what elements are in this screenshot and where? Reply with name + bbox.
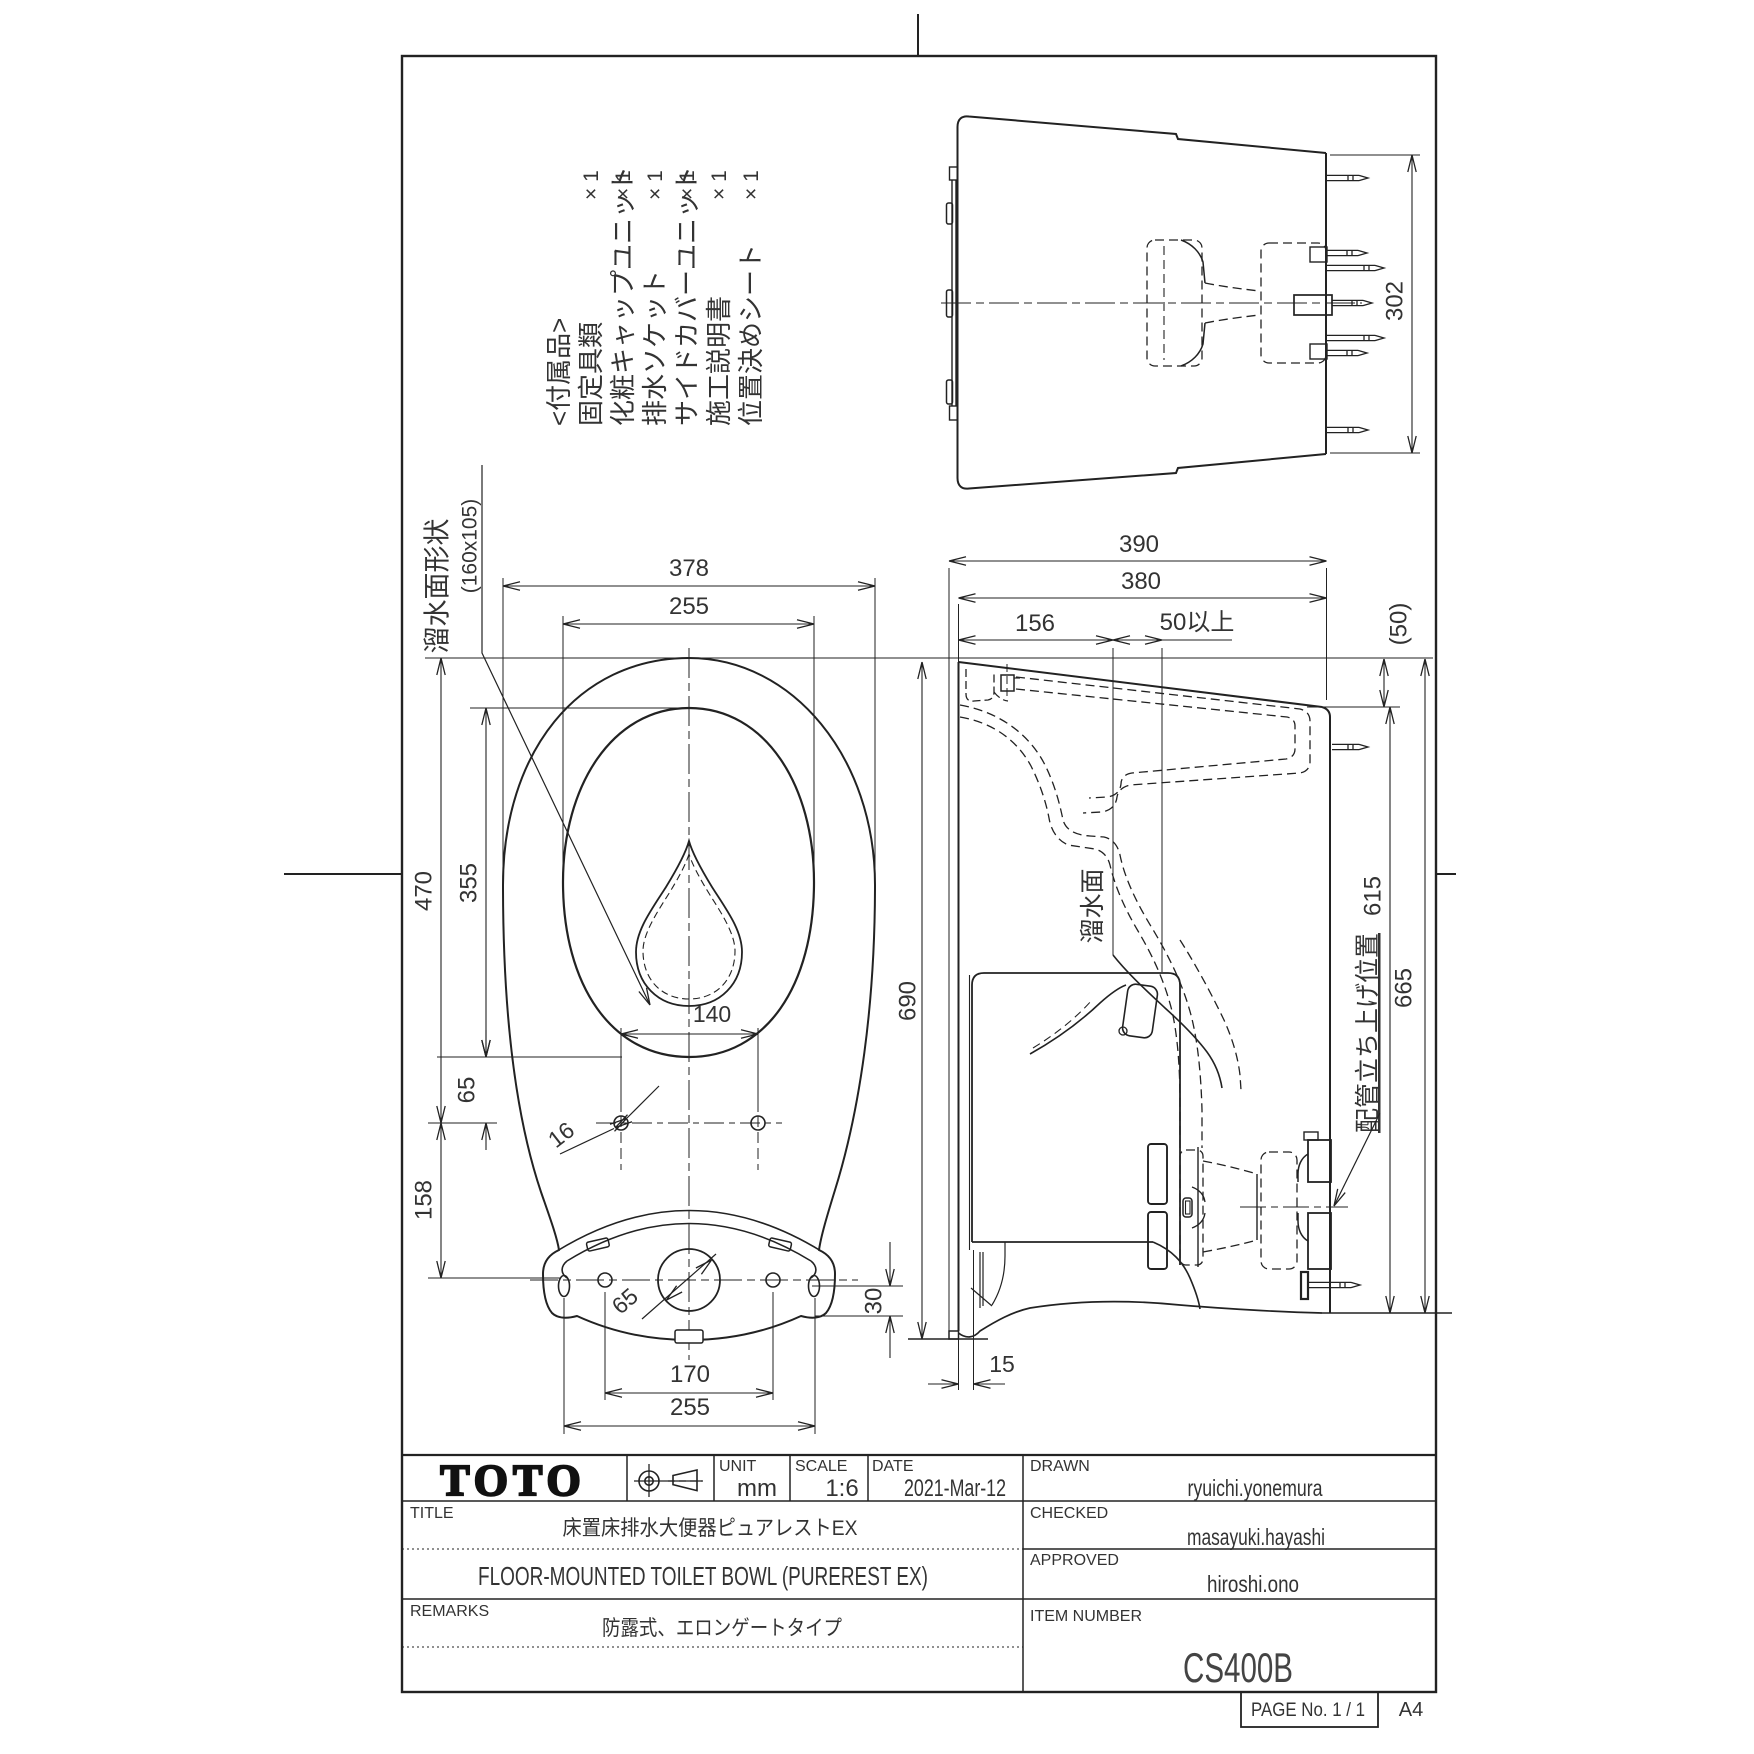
svg-text:140: 140 [693,1001,731,1027]
svg-text:390: 390 [1119,531,1159,558]
svg-text:<付属品>: <付属品> [544,318,574,426]
svg-text:× 1: × 1 [612,170,635,200]
svg-text:masayuki.hayashi: masayuki.hayashi [1187,1524,1325,1550]
svg-text:UNIT: UNIT [719,1458,757,1475]
svg-text:溜水面形状: 溜水面形状 [423,519,453,654]
svg-text:施工説明書: 施工説明書 [704,296,734,426]
svg-text:A4: A4 [1399,1699,1423,1721]
svg-text:防露式、エロンゲートタイプ: 防露式、エロンゲートタイプ [602,1617,842,1640]
svg-text:158: 158 [411,1180,438,1220]
svg-text:665: 665 [1391,968,1418,1008]
svg-text:255: 255 [669,593,709,620]
svg-text:1:6: 1:6 [825,1475,858,1502]
svg-text:470: 470 [411,871,438,911]
svg-text:ITEM NUMBER: ITEM NUMBER [1030,1608,1142,1625]
svg-text:156: 156 [1015,610,1055,637]
svg-text:2021-Mar-12: 2021-Mar-12 [904,1475,1006,1502]
svg-text:DRAWN: DRAWN [1030,1458,1090,1475]
svg-text:× 1: × 1 [740,170,763,200]
svg-text:× 1: × 1 [644,170,667,200]
svg-text:溜水面: 溜水面 [1079,868,1107,943]
svg-text:× 1: × 1 [580,170,603,200]
svg-text:化粧キャップユニット: 化粧キャップユニット [608,166,638,426]
svg-text:(50): (50) [1386,603,1413,646]
svg-text:DATE: DATE [872,1458,913,1475]
svg-text:固定具類: 固定具類 [576,322,606,426]
svg-text:配管立ち上げ位置: 配管立ち上げ位置 [1354,933,1382,1133]
svg-text:TOTO: TOTO [440,1456,586,1505]
svg-text:× 1: × 1 [708,170,731,200]
svg-text:170: 170 [670,1361,710,1388]
svg-text:ryuichi.yonemura: ryuichi.yonemura [1188,1475,1323,1501]
svg-text:× 1: × 1 [676,170,699,200]
svg-text:REMARKS: REMARKS [410,1603,489,1620]
svg-text:15: 15 [989,1351,1015,1377]
svg-text:355: 355 [456,863,483,903]
svg-text:CS400B: CS400B [1183,1644,1293,1691]
svg-text:PAGE No. 1 / 1: PAGE No. 1 / 1 [1251,1700,1365,1721]
svg-text:690: 690 [895,981,922,1021]
svg-text:サイドカバーユニット: サイドカバーユニット [672,166,702,426]
svg-text:SCALE: SCALE [795,1458,847,1475]
svg-text:位置決めシート: 位置決めシート [736,244,766,426]
svg-text:APPROVED: APPROVED [1030,1552,1119,1569]
svg-text:65: 65 [454,1077,481,1104]
svg-text:(160x105): (160x105) [459,499,482,594]
svg-text:hiroshi.ono: hiroshi.ono [1207,1571,1299,1597]
svg-text:30: 30 [861,1288,888,1315]
svg-text:615: 615 [1360,876,1387,916]
svg-text:床置床排水大便器ピュアレストEX: 床置床排水大便器ピュアレストEX [563,1517,858,1540]
svg-text:50以上: 50以上 [1160,609,1235,636]
svg-text:302: 302 [1382,281,1409,321]
svg-text:380: 380 [1121,568,1161,595]
svg-text:mm: mm [737,1475,777,1502]
svg-text:378: 378 [669,555,709,582]
svg-text:255: 255 [670,1394,710,1421]
svg-text:FLOOR-MOUNTED TOILET BOWL (PUR: FLOOR-MOUNTED TOILET BOWL (PUREREST EX) [478,1561,928,1591]
svg-text:排水ソケット: 排水ソケット [640,270,670,426]
svg-text:CHECKED: CHECKED [1030,1505,1108,1522]
svg-text:TITLE: TITLE [410,1505,454,1522]
